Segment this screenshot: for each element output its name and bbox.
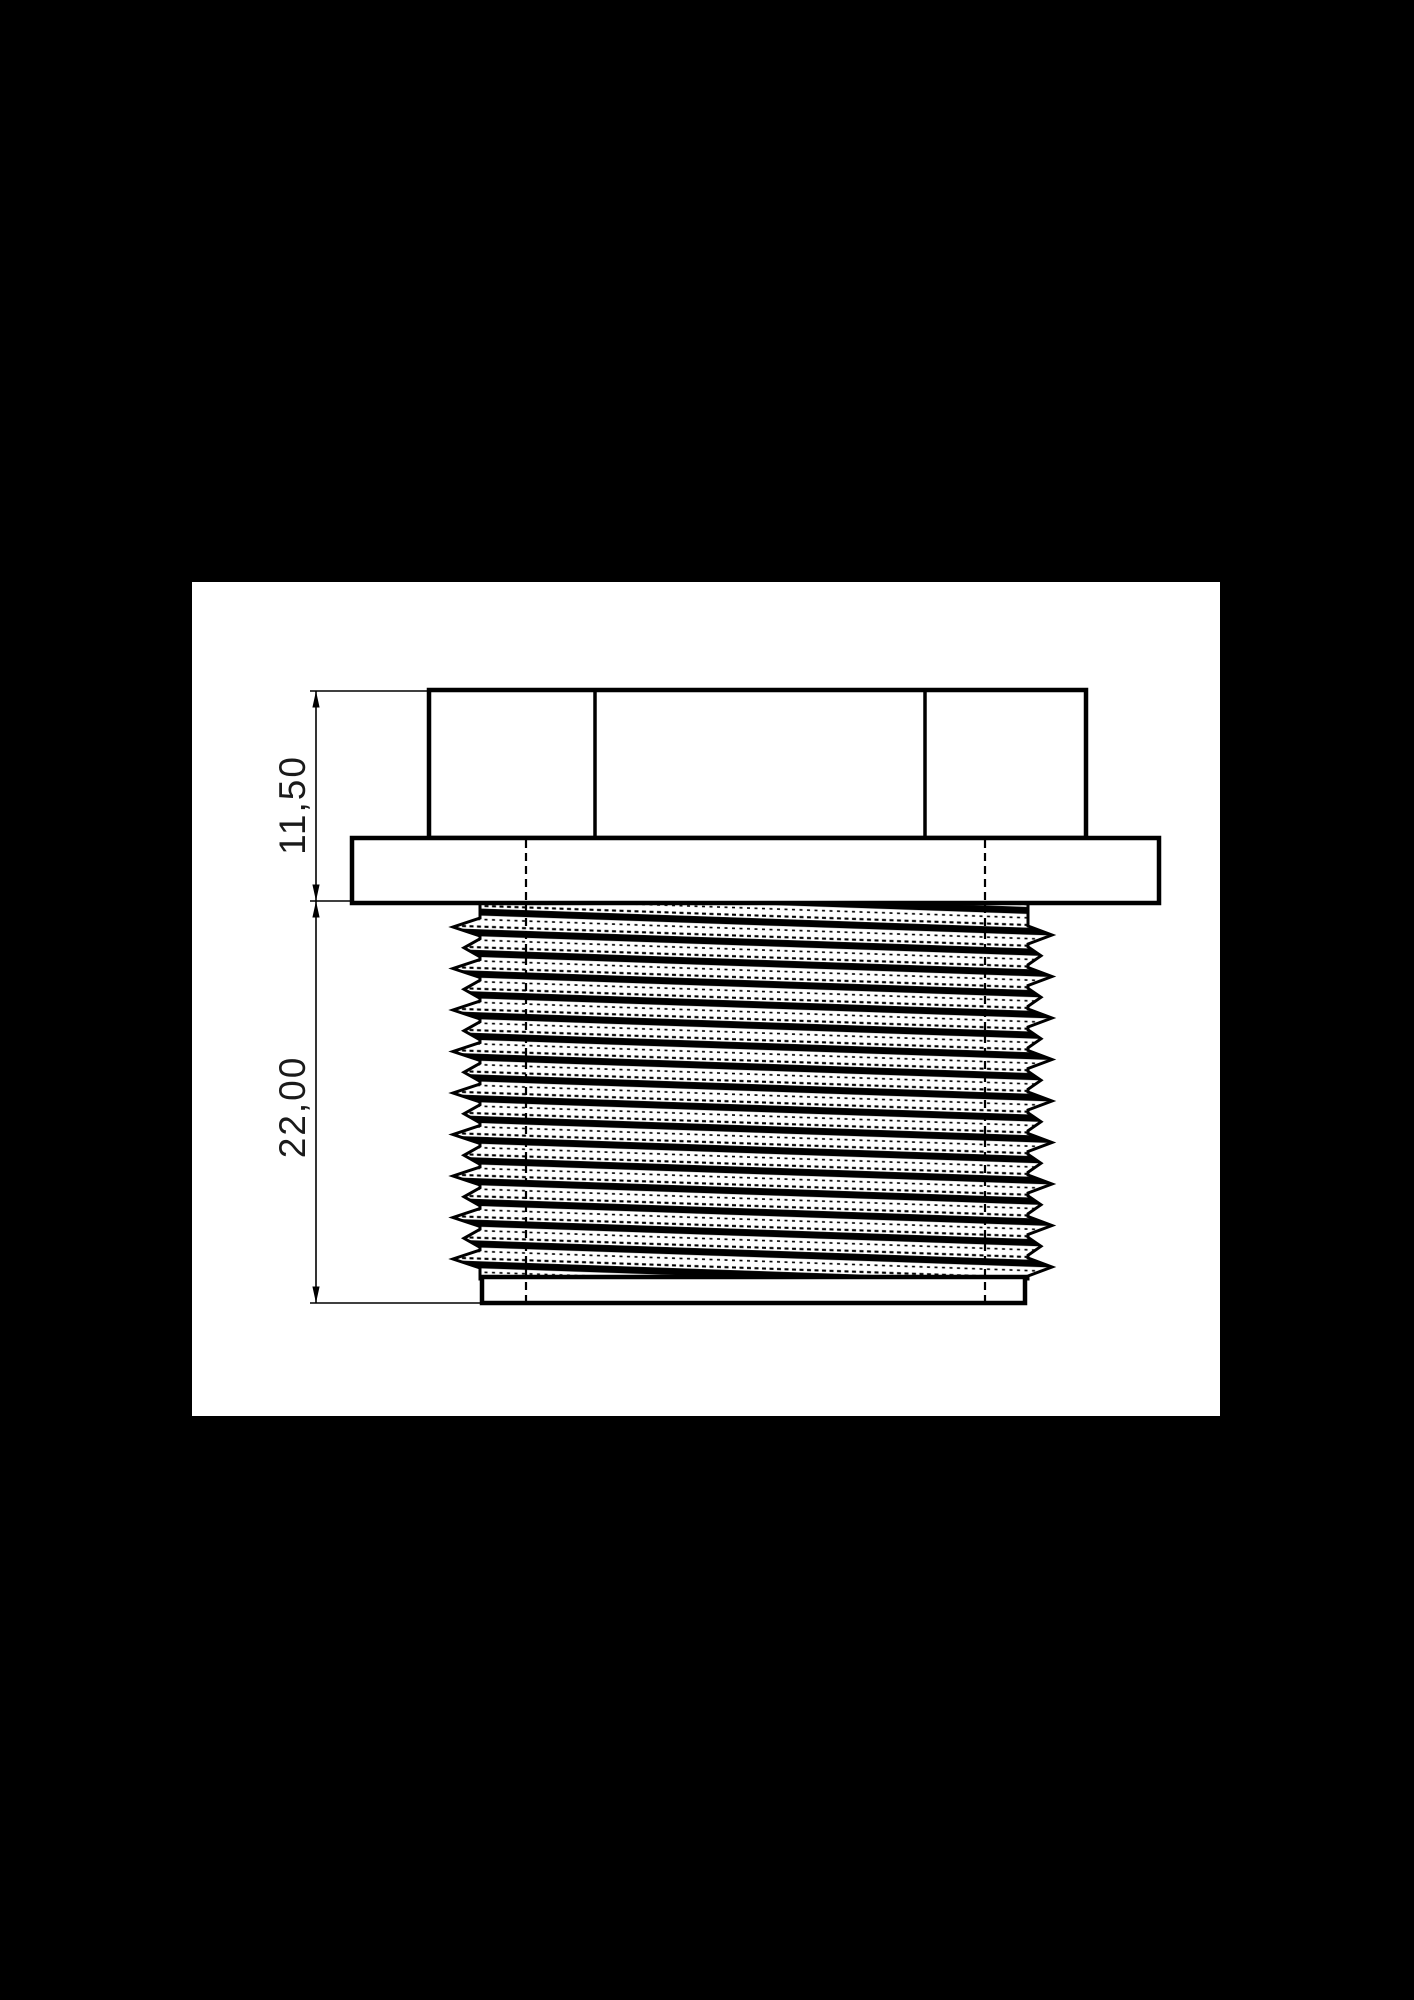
thread-body [442,900,1062,1282]
bottom-ring [482,1277,1025,1303]
hex-head [429,690,1086,838]
dim-label-head-height: 11,50 [272,755,314,855]
flange [352,838,1159,903]
part-drawing [192,582,1220,1416]
dim-label-thread-length: 22,00 [272,1056,314,1159]
screen-background: 11,50 22,00 [0,0,1414,2000]
drawing-sheet: 11,50 22,00 [192,582,1220,1416]
